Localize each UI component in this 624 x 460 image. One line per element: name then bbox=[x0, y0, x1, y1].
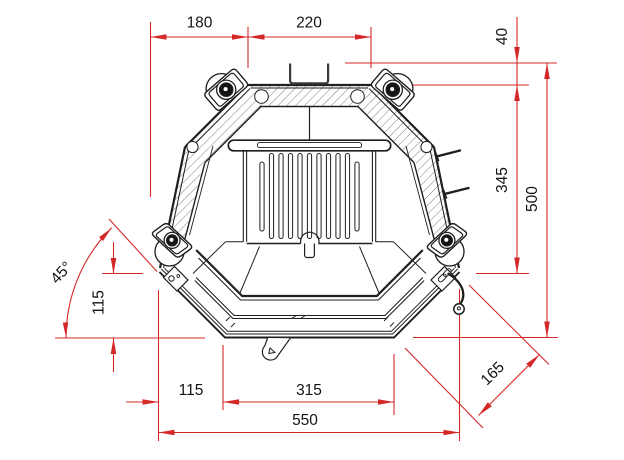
svg-text:180: 180 bbox=[187, 15, 213, 32]
svg-text:550: 550 bbox=[292, 412, 318, 429]
svg-text:345: 345 bbox=[494, 167, 511, 193]
svg-text:115: 115 bbox=[91, 290, 108, 315]
svg-text:500: 500 bbox=[524, 186, 541, 212]
svg-text:40: 40 bbox=[494, 28, 511, 46]
svg-text:220: 220 bbox=[296, 15, 322, 32]
svg-text:115: 115 bbox=[179, 382, 204, 399]
svg-text:315: 315 bbox=[296, 382, 322, 399]
